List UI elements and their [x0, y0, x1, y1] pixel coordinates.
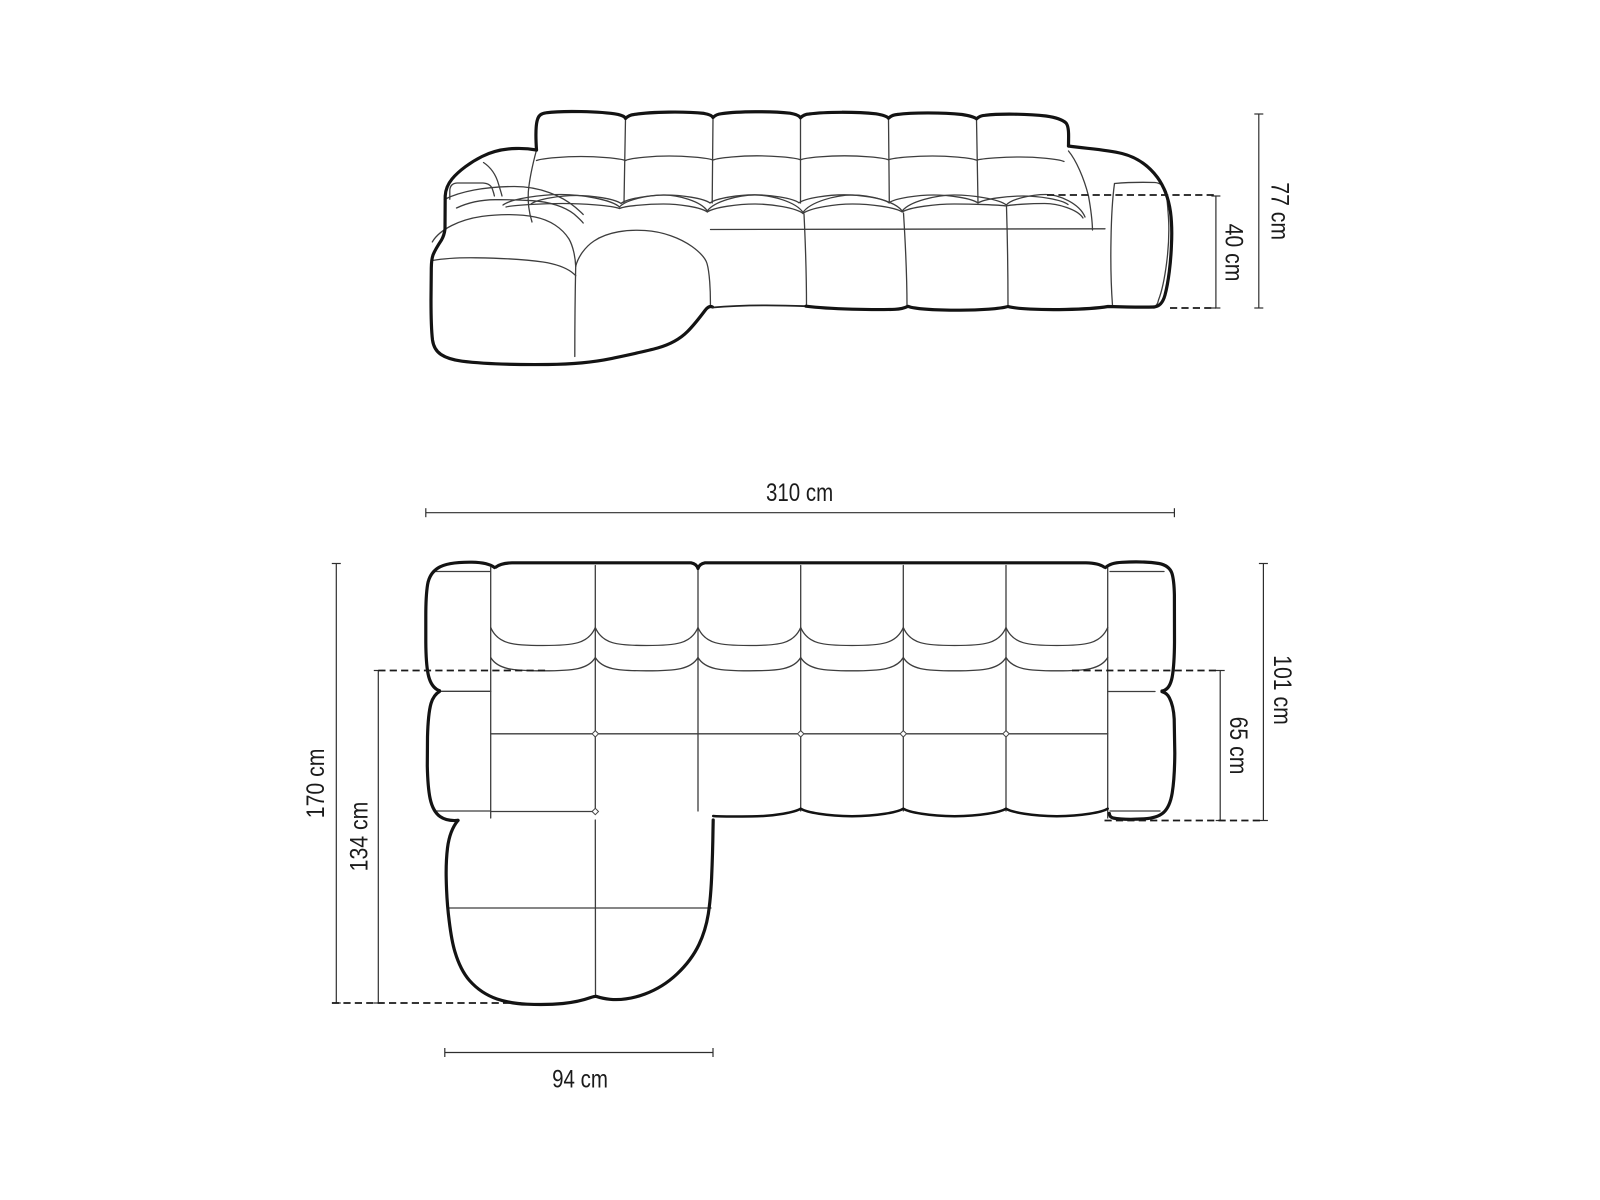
svg-text:170 cm: 170 cm [302, 749, 330, 819]
svg-text:101 cm: 101 cm [1269, 655, 1297, 725]
svg-text:134 cm: 134 cm [345, 802, 373, 872]
svg-text:77 cm: 77 cm [1266, 182, 1294, 240]
svg-text:40 cm: 40 cm [1220, 224, 1248, 282]
svg-text:65 cm: 65 cm [1225, 717, 1253, 775]
svg-text:310 cm: 310 cm [766, 478, 833, 506]
svg-text:94 cm: 94 cm [552, 1065, 608, 1093]
